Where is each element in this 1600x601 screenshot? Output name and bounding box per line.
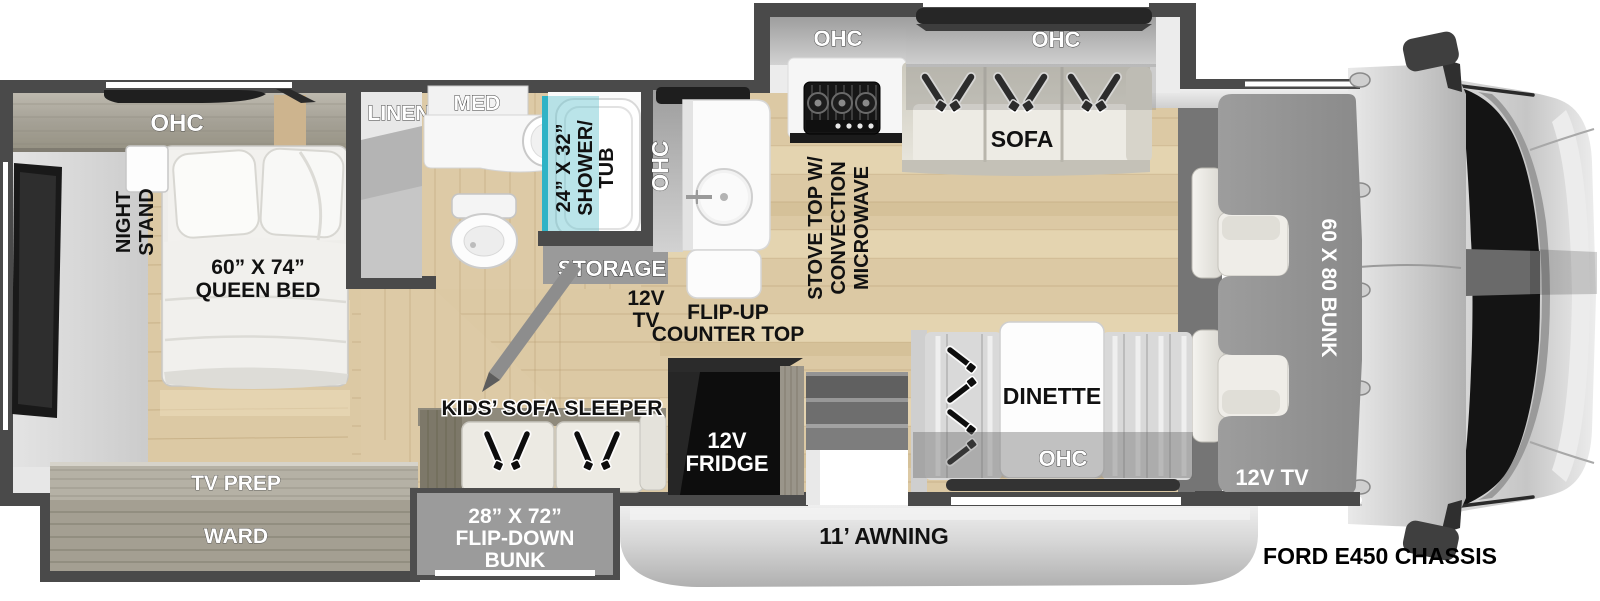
svg-text:OHC: OHC <box>150 110 203 137</box>
svg-text:NIGHT: NIGHT <box>113 191 135 253</box>
svg-text:11’ AWNING: 11’ AWNING <box>819 523 949 549</box>
svg-text:60 X 80 BUNK: 60 X 80 BUNK <box>1317 219 1340 358</box>
svg-text:FLIP-UP: FLIP-UP <box>687 301 769 324</box>
svg-text:TUB: TUB <box>596 147 618 188</box>
svg-text:CONVECTION: CONVECTION <box>828 161 850 294</box>
svg-text:LINEN: LINEN <box>368 102 431 125</box>
svg-text:12V: 12V <box>627 287 664 310</box>
svg-text:WARD: WARD <box>204 525 268 548</box>
svg-text:60” X 74”: 60” X 74” <box>211 256 304 279</box>
svg-text:BUNK: BUNK <box>485 549 546 572</box>
svg-text:STAND: STAND <box>136 188 158 255</box>
svg-text:12V: 12V <box>707 428 746 453</box>
svg-text:SOFA: SOFA <box>991 126 1054 152</box>
svg-text:12V TV: 12V TV <box>1235 465 1309 490</box>
svg-text:FORD E450 CHASSIS: FORD E450 CHASSIS <box>1263 543 1497 569</box>
svg-text:KIDS’ SOFA SLEEPER: KIDS’ SOFA SLEEPER <box>442 397 663 420</box>
svg-text:FRIDGE: FRIDGE <box>685 451 768 476</box>
svg-text:OHC: OHC <box>1039 446 1088 471</box>
svg-text:OHC: OHC <box>647 140 673 191</box>
svg-text:COUNTER TOP: COUNTER TOP <box>652 323 804 346</box>
svg-text:DINETTE: DINETTE <box>1003 383 1101 409</box>
svg-text:MICROWAVE: MICROWAVE <box>851 166 873 290</box>
svg-text:OHC: OHC <box>814 26 863 51</box>
svg-text:STOVE TOP W/: STOVE TOP W/ <box>805 156 827 300</box>
svg-text:24” X 32”: 24” X 32” <box>553 124 575 213</box>
svg-text:28” X 72”: 28” X 72” <box>468 505 561 528</box>
svg-text:FLIP-DOWN: FLIP-DOWN <box>456 527 575 550</box>
svg-text:SHOWER/: SHOWER/ <box>575 120 597 216</box>
svg-text:MED: MED <box>454 92 501 115</box>
svg-text:QUEEN BED: QUEEN BED <box>196 279 321 302</box>
svg-text:TV PREP: TV PREP <box>191 472 281 495</box>
